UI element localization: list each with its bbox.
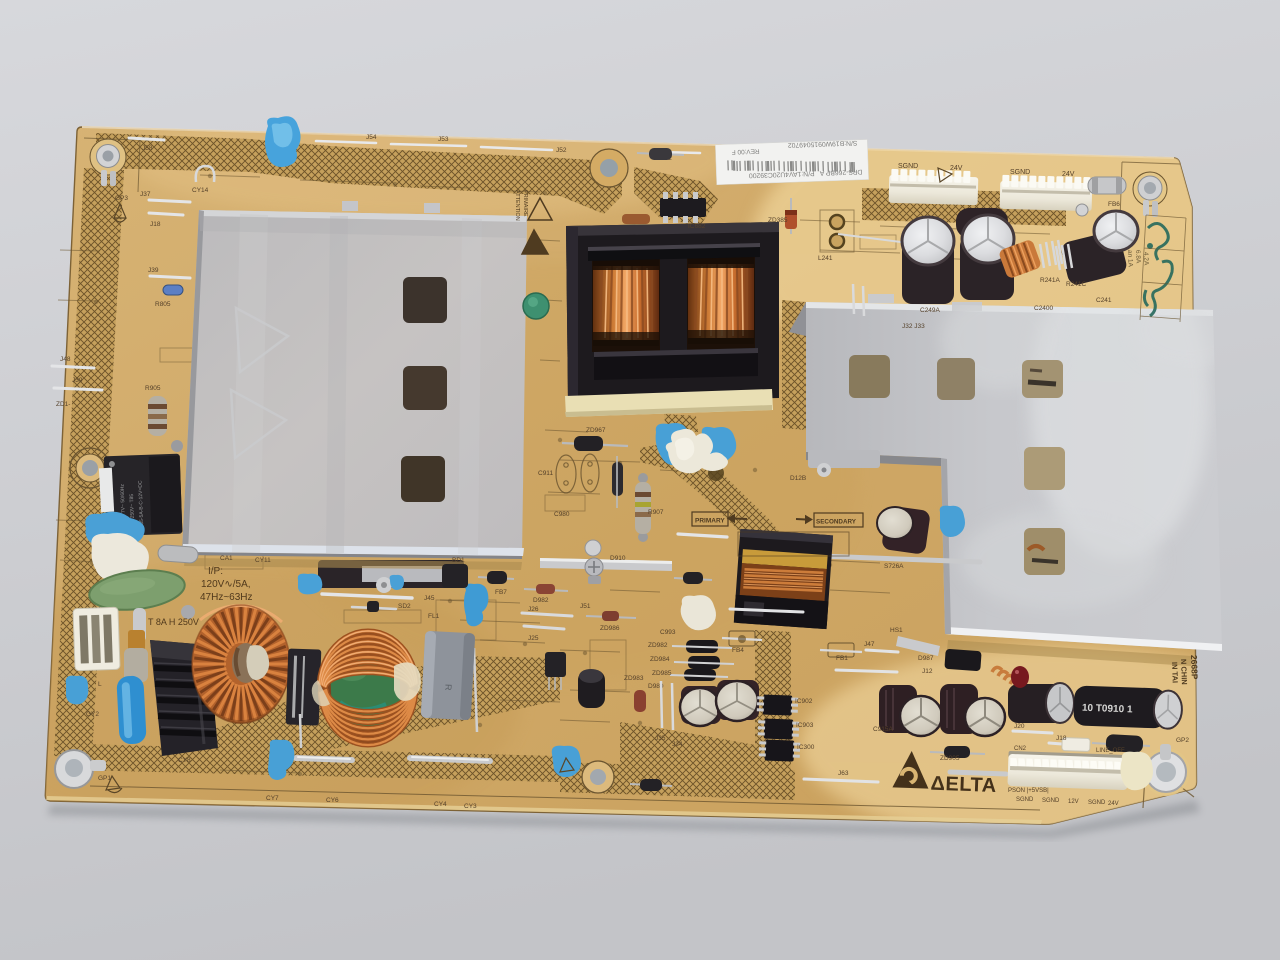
- svg-text:J37: J37: [140, 191, 151, 198]
- svg-text:R905: R905: [145, 385, 161, 392]
- svg-text:C911: C911: [538, 470, 553, 477]
- svg-text:R907: R907: [648, 509, 664, 516]
- svg-text:J12: J12: [922, 668, 933, 675]
- svg-text:24V: 24V: [1062, 171, 1075, 178]
- svg-text:ZD984: ZD984: [650, 656, 670, 663]
- svg-text:J26: J26: [528, 606, 539, 613]
- svg-text:24V: 24V: [950, 165, 963, 172]
- svg-text:ATTENTION: ATTENTION: [514, 190, 520, 221]
- svg-text:FL1: FL1: [428, 613, 440, 620]
- svg-text:J53: J53: [438, 136, 449, 143]
- svg-text:CY6: CY6: [326, 797, 339, 804]
- svg-text:J45: J45: [424, 595, 435, 602]
- svg-text:CY4: CY4: [434, 801, 447, 808]
- svg-text:C980: C980: [554, 511, 570, 518]
- svg-text:CN2: CN2: [1014, 746, 1027, 752]
- svg-text:J47: J47: [864, 641, 875, 648]
- svg-text:SGND: SGND: [1016, 797, 1034, 803]
- svg-text:R: R: [443, 684, 453, 692]
- svg-text:LINE_OFF: LINE_OFF: [1096, 748, 1125, 754]
- svg-text:24V: 24V: [1108, 801, 1119, 807]
- svg-text:C249A: C249A: [920, 307, 941, 314]
- svg-text:ZD983: ZD983: [624, 675, 644, 682]
- svg-text:S726A: S726A: [884, 563, 904, 570]
- svg-text:an 1A: an 1A: [1126, 250, 1134, 268]
- svg-text:CY11: CY11: [255, 557, 271, 564]
- svg-text:C993: C993: [660, 629, 676, 636]
- svg-text:ΔELTA: ΔELTA: [930, 773, 997, 797]
- svg-text:J39: J39: [148, 267, 159, 274]
- svg-text:J52: J52: [556, 147, 567, 154]
- svg-text:CA1: CA1: [220, 555, 233, 562]
- svg-text:ZD985: ZD985: [652, 670, 672, 677]
- svg-text:CY7: CY7: [266, 795, 279, 802]
- svg-text:J51: J51: [580, 603, 591, 610]
- svg-text:L: L: [98, 681, 102, 688]
- svg-text:REV:00 F: REV:00 F: [732, 147, 760, 155]
- svg-text:ZD905: ZD905: [940, 755, 960, 762]
- svg-text:IC300: IC300: [797, 744, 815, 751]
- svg-text:FB1: FB1: [836, 655, 848, 662]
- svg-text:J32 J33: J32 J33: [902, 323, 925, 330]
- svg-text:C241: C241: [1096, 297, 1112, 304]
- svg-text:FB7: FB7: [495, 589, 507, 596]
- svg-text:PRIMARY: PRIMARY: [695, 518, 725, 525]
- svg-text:J35: J35: [655, 735, 666, 742]
- svg-text:CY14: CY14: [192, 187, 209, 194]
- svg-text:T 8A H 250V: T 8A H 250V: [148, 617, 199, 627]
- svg-text:J39: J39: [72, 377, 83, 384]
- svg-text:J63: J63: [838, 770, 849, 777]
- svg-text:J20: J20: [1014, 723, 1025, 730]
- svg-text:R241C: R241C: [1066, 281, 1087, 288]
- svg-text:BD1: BD1: [452, 557, 465, 564]
- svg-text:FB6: FB6: [1108, 201, 1120, 208]
- svg-text:2668P: 2668P: [1189, 655, 1200, 680]
- svg-text:SGND: SGND: [1042, 798, 1060, 804]
- svg-text:FB4: FB4: [732, 647, 744, 654]
- svg-text:D987: D987: [918, 655, 934, 662]
- svg-text:L241: L241: [818, 255, 833, 262]
- svg-text:IC682: IC682: [688, 223, 706, 230]
- svg-text:ZD967: ZD967: [586, 427, 606, 434]
- svg-text:47Hz~63Hz: 47Hz~63Hz: [200, 592, 253, 603]
- svg-text:PSON |+5VSB|: PSON |+5VSB|: [1008, 788, 1049, 794]
- svg-text:PRIMAIRE: PRIMAIRE: [522, 190, 528, 217]
- svg-text:CY3: CY3: [464, 803, 477, 810]
- svg-text:C915A: C915A: [873, 726, 894, 733]
- svg-text:J54: J54: [366, 134, 377, 141]
- svg-text:ZD1-: ZD1-: [56, 401, 70, 408]
- svg-text:ZD986: ZD986: [600, 625, 620, 632]
- svg-text:SD2: SD2: [398, 603, 411, 610]
- svg-text:CY8: CY8: [178, 757, 191, 764]
- svg-text:120V∿/5A,: 120V∿/5A,: [201, 579, 251, 590]
- svg-text:GY2: GY2: [86, 711, 99, 718]
- svg-text:12V: 12V: [1068, 799, 1079, 805]
- svg-text:I/P:: I/P:: [208, 566, 223, 577]
- svg-text:SGND: SGND: [898, 163, 918, 170]
- svg-text:IC903: IC903: [796, 722, 814, 729]
- svg-text:IC902: IC902: [795, 698, 813, 705]
- svg-text:J25: J25: [528, 635, 539, 642]
- svg-text:J18: J18: [150, 221, 161, 228]
- svg-text:GP2: GP2: [1176, 737, 1189, 744]
- svg-text:6.8A: 6.8A: [1134, 250, 1141, 264]
- svg-text:J58: J58: [142, 145, 153, 152]
- svg-text:R241A: R241A: [1040, 277, 1061, 284]
- svg-text:D12B: D12B: [790, 475, 806, 482]
- svg-text:SECONDARY: SECONDARY: [816, 519, 857, 526]
- svg-text:D982: D982: [533, 597, 549, 604]
- svg-text:SGND: SGND: [1088, 800, 1106, 806]
- svg-text:J18: J18: [1056, 735, 1067, 742]
- svg-text:J48: J48: [60, 356, 71, 363]
- svg-text:SGND: SGND: [1010, 169, 1030, 176]
- svg-text:10 T0910 1: 10 T0910 1: [1082, 703, 1133, 716]
- svg-text:ZD385: ZD385: [768, 217, 788, 224]
- svg-text:J34: J34: [672, 741, 683, 748]
- svg-text:R805: R805: [155, 301, 171, 308]
- svg-text:C2400: C2400: [1034, 305, 1054, 312]
- svg-text:HS1: HS1: [890, 627, 903, 634]
- svg-text:GP3: GP3: [115, 195, 128, 202]
- svg-text:ZD982: ZD982: [648, 642, 668, 649]
- svg-text:IN TAI: IN TAI: [1170, 662, 1180, 683]
- svg-text:D910: D910: [610, 555, 626, 562]
